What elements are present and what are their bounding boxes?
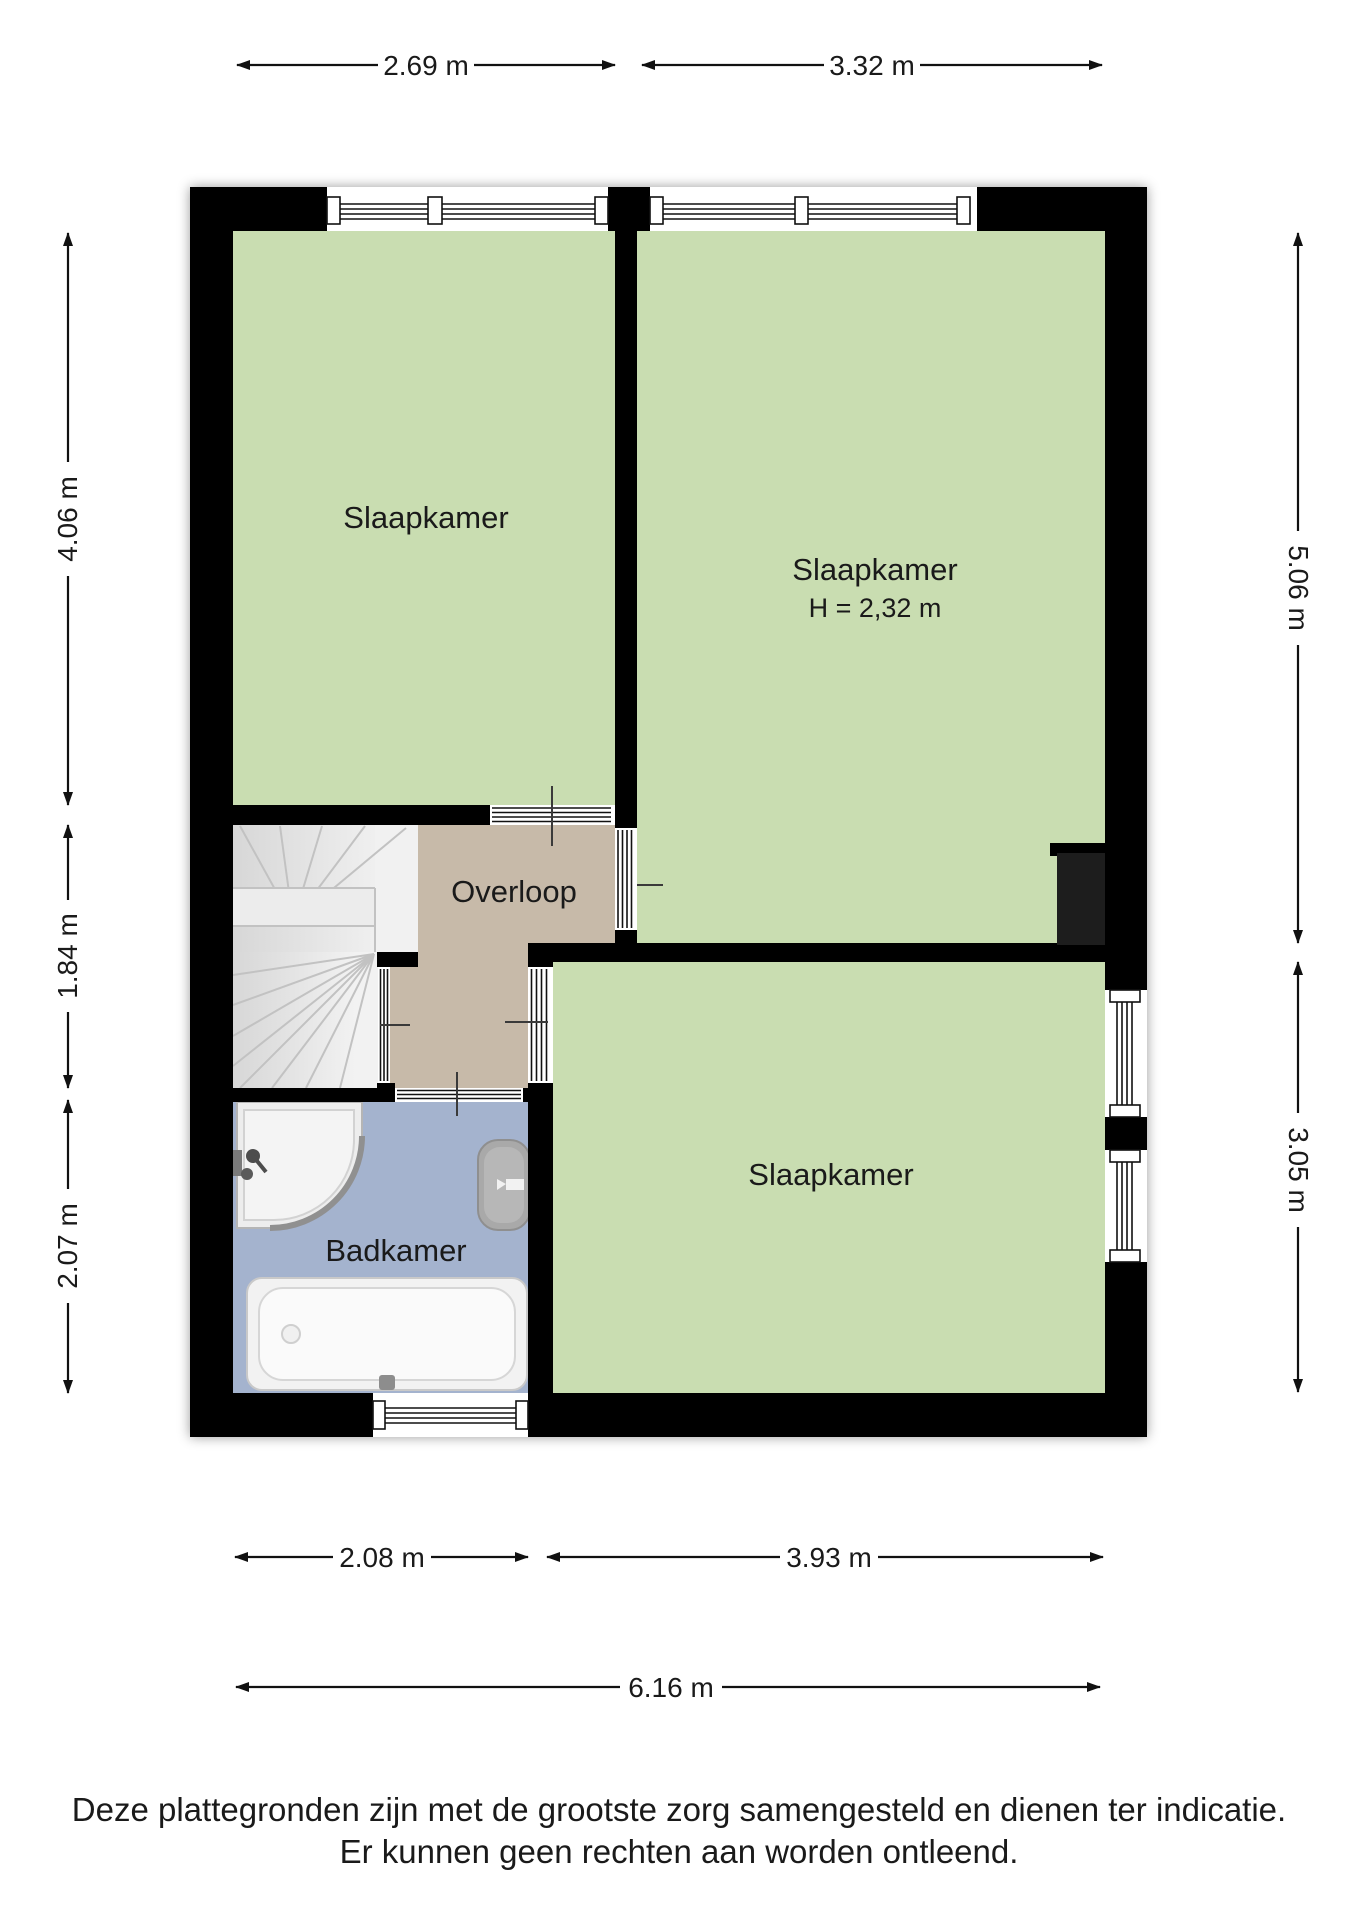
bedroom-top-left-label: Slaapkamer xyxy=(343,500,508,535)
floor-plan-svg: Slaapkamer Slaapkamer H = 2,32 m Slaapka… xyxy=(0,0,1358,1920)
dim-top-1: 2.69 m xyxy=(237,50,615,81)
chimney-block xyxy=(1050,843,1105,945)
dim-left-2: 1.84 m xyxy=(52,825,83,1088)
bathtub xyxy=(247,1278,527,1390)
disclaimer-line-1: Deze plattegronden zijn met de grootste … xyxy=(72,1791,1286,1828)
bedroom-bottom-label: Slaapkamer xyxy=(748,1157,913,1192)
bedroom-top-right-height-note: H = 2,32 m xyxy=(809,593,942,623)
dim-left-1: 4.06 m xyxy=(52,233,83,805)
dim-bottom-1: 2.08 m xyxy=(235,1542,528,1573)
dim-bottom-1-label: 2.08 m xyxy=(339,1542,425,1573)
dim-top-2: 3.32 m xyxy=(642,50,1102,81)
dim-right-1: 5.06 m xyxy=(1283,233,1314,943)
landing-label: Overloop xyxy=(451,874,577,909)
disclaimer-line-2: Er kunnen geen rechten aan worden ontlee… xyxy=(340,1833,1019,1870)
window-top-left xyxy=(327,187,608,231)
dim-left-3: 2.07 m xyxy=(52,1100,83,1393)
dim-right-1-label: 5.06 m xyxy=(1283,545,1314,631)
bedroom-top-right-floor xyxy=(637,231,1105,943)
dim-bottom-total: 6.16 m xyxy=(236,1672,1100,1703)
dim-left-2-label: 1.84 m xyxy=(52,913,83,999)
floor-plan-page: Slaapkamer Slaapkamer H = 2,32 m Slaapka… xyxy=(0,0,1358,1920)
dim-right-2-label: 3.05 m xyxy=(1283,1127,1314,1213)
disclaimer: Deze plattegronden zijn met de grootste … xyxy=(72,1791,1286,1870)
window-top-right xyxy=(650,187,970,231)
floor-plan: Slaapkamer Slaapkamer H = 2,32 m Slaapka… xyxy=(190,187,1147,1437)
bathroom-label: Badkamer xyxy=(325,1233,466,1268)
window-right-lower xyxy=(1105,1150,1147,1262)
dim-left-1-label: 4.06 m xyxy=(52,476,83,562)
dim-bottom-2: 3.93 m xyxy=(547,1542,1103,1573)
dim-top-2-label: 3.32 m xyxy=(829,50,915,81)
sink xyxy=(478,1140,530,1230)
bedroom-top-right-label: Slaapkamer xyxy=(792,552,957,587)
dim-left-3-label: 2.07 m xyxy=(52,1203,83,1289)
dim-bottom-total-label: 6.16 m xyxy=(628,1672,714,1703)
dim-top-1-label: 2.69 m xyxy=(383,50,469,81)
dim-right-2: 3.05 m xyxy=(1283,962,1314,1392)
dim-bottom-2-label: 3.93 m xyxy=(786,1542,872,1573)
window-right-upper xyxy=(1105,990,1147,1117)
bathtub-tap-icon xyxy=(379,1375,395,1390)
window-bottom xyxy=(373,1393,528,1437)
